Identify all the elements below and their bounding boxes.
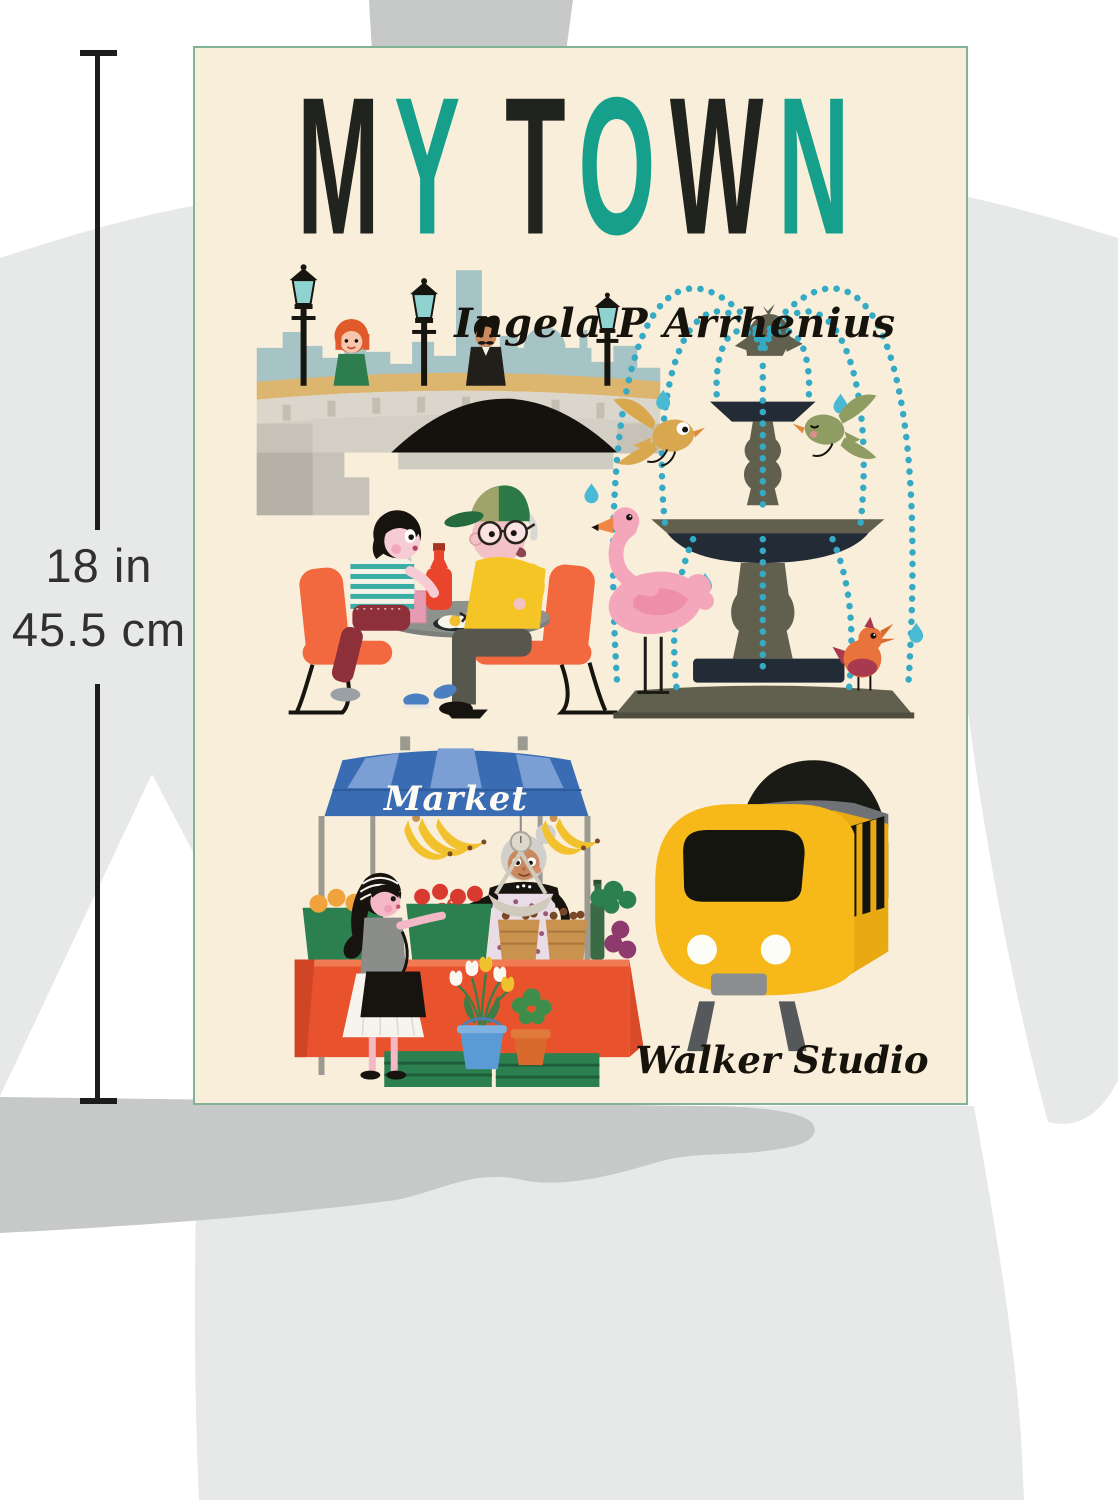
window-divider xyxy=(856,823,862,918)
measure-line-upper xyxy=(95,50,100,530)
publisher-name: Walker Studio xyxy=(632,1038,932,1082)
train-bumper xyxy=(711,973,767,995)
book-cover[interactable]: Market xyxy=(193,46,968,1105)
dimension-cm: 45.5 cm xyxy=(0,602,198,657)
fountain-plinth xyxy=(693,659,844,683)
market-canopy: Market xyxy=(324,748,588,818)
ketchup-bottle xyxy=(426,543,452,610)
measure-line-lower xyxy=(95,684,100,1098)
silhouette-head xyxy=(369,0,573,52)
canopy-tab xyxy=(518,736,528,750)
handbag xyxy=(360,971,426,1017)
headlight xyxy=(761,935,791,965)
canopy-tab xyxy=(400,736,410,750)
headlight xyxy=(687,935,717,965)
bridge-left-pier-shade xyxy=(257,452,313,515)
silhouette-right-arm xyxy=(968,197,1118,1124)
grandfather-at-table xyxy=(439,485,546,715)
cafe-scene xyxy=(289,485,618,718)
train-scene xyxy=(655,760,888,1051)
book-title: MYTOWN xyxy=(272,60,889,275)
window-divider xyxy=(870,819,876,914)
market-sign: Market xyxy=(383,778,528,818)
fountain-base xyxy=(613,686,914,717)
measure-bottom-cap xyxy=(80,1098,117,1104)
train-windshield xyxy=(683,830,805,902)
market-scene: Market xyxy=(295,736,644,1087)
beets xyxy=(604,921,636,959)
product-image-canvas: 18 in 45.5 cm xyxy=(0,0,1118,1500)
fountain-basin-brim xyxy=(651,519,884,533)
dimension-inches: 18 in xyxy=(0,538,198,593)
author-name: Ingela P Arrhenius xyxy=(454,300,896,347)
striped-shirt xyxy=(350,559,414,611)
fountain-base-lip xyxy=(613,712,914,718)
